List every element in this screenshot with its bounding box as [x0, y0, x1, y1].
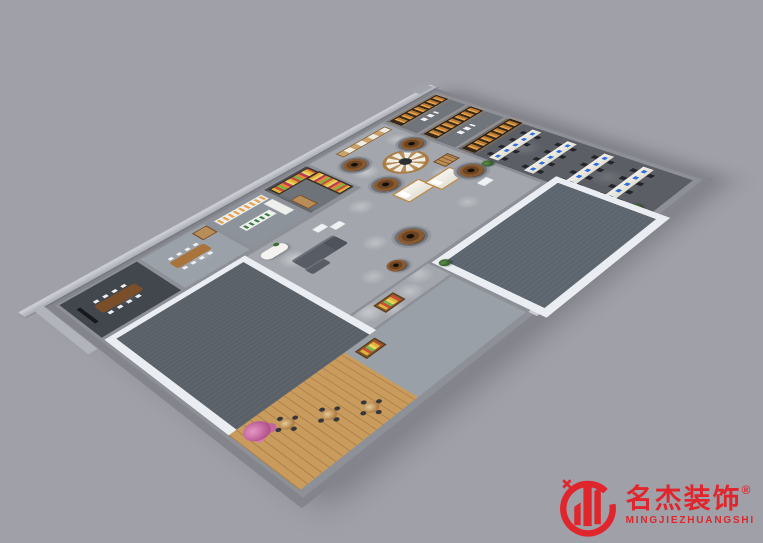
dining-table — [276, 416, 298, 432]
tea-table — [169, 243, 212, 268]
cafe-island-counter — [239, 209, 277, 231]
logo-bar-2 — [583, 481, 591, 526]
star-x-mark — [563, 480, 570, 487]
logo-bar-3 — [594, 486, 600, 525]
logo-bar-1 — [574, 502, 580, 525]
reading-table — [456, 124, 476, 135]
product-cabinet — [290, 194, 318, 209]
brand-name-english: MINGJIEZHUANGSHI — [626, 516, 755, 526]
registered-mark: ® — [742, 483, 751, 497]
glowing-bookshelf — [389, 95, 448, 126]
meeting-table — [94, 283, 144, 313]
render-canvas: 名杰装饰® MINGJIEZHUANGSHI — [0, 0, 763, 543]
floorplan-3d — [45, 88, 713, 508]
brand-logo-icon — [555, 473, 621, 537]
brand-name-chinese: 名杰装饰® — [626, 484, 755, 513]
brand-watermark: 名杰装饰® MINGJIEZHUANGSHI — [555, 473, 755, 537]
tea-cabinet — [192, 225, 218, 240]
dining-table — [318, 407, 340, 423]
snack-display-cart — [355, 338, 387, 359]
tv-panel — [77, 307, 99, 323]
dining-table — [360, 399, 382, 415]
brand-text-block: 名杰装饰® MINGJIEZHUANGSHI — [626, 484, 755, 526]
north-wall-stub — [408, 83, 433, 94]
